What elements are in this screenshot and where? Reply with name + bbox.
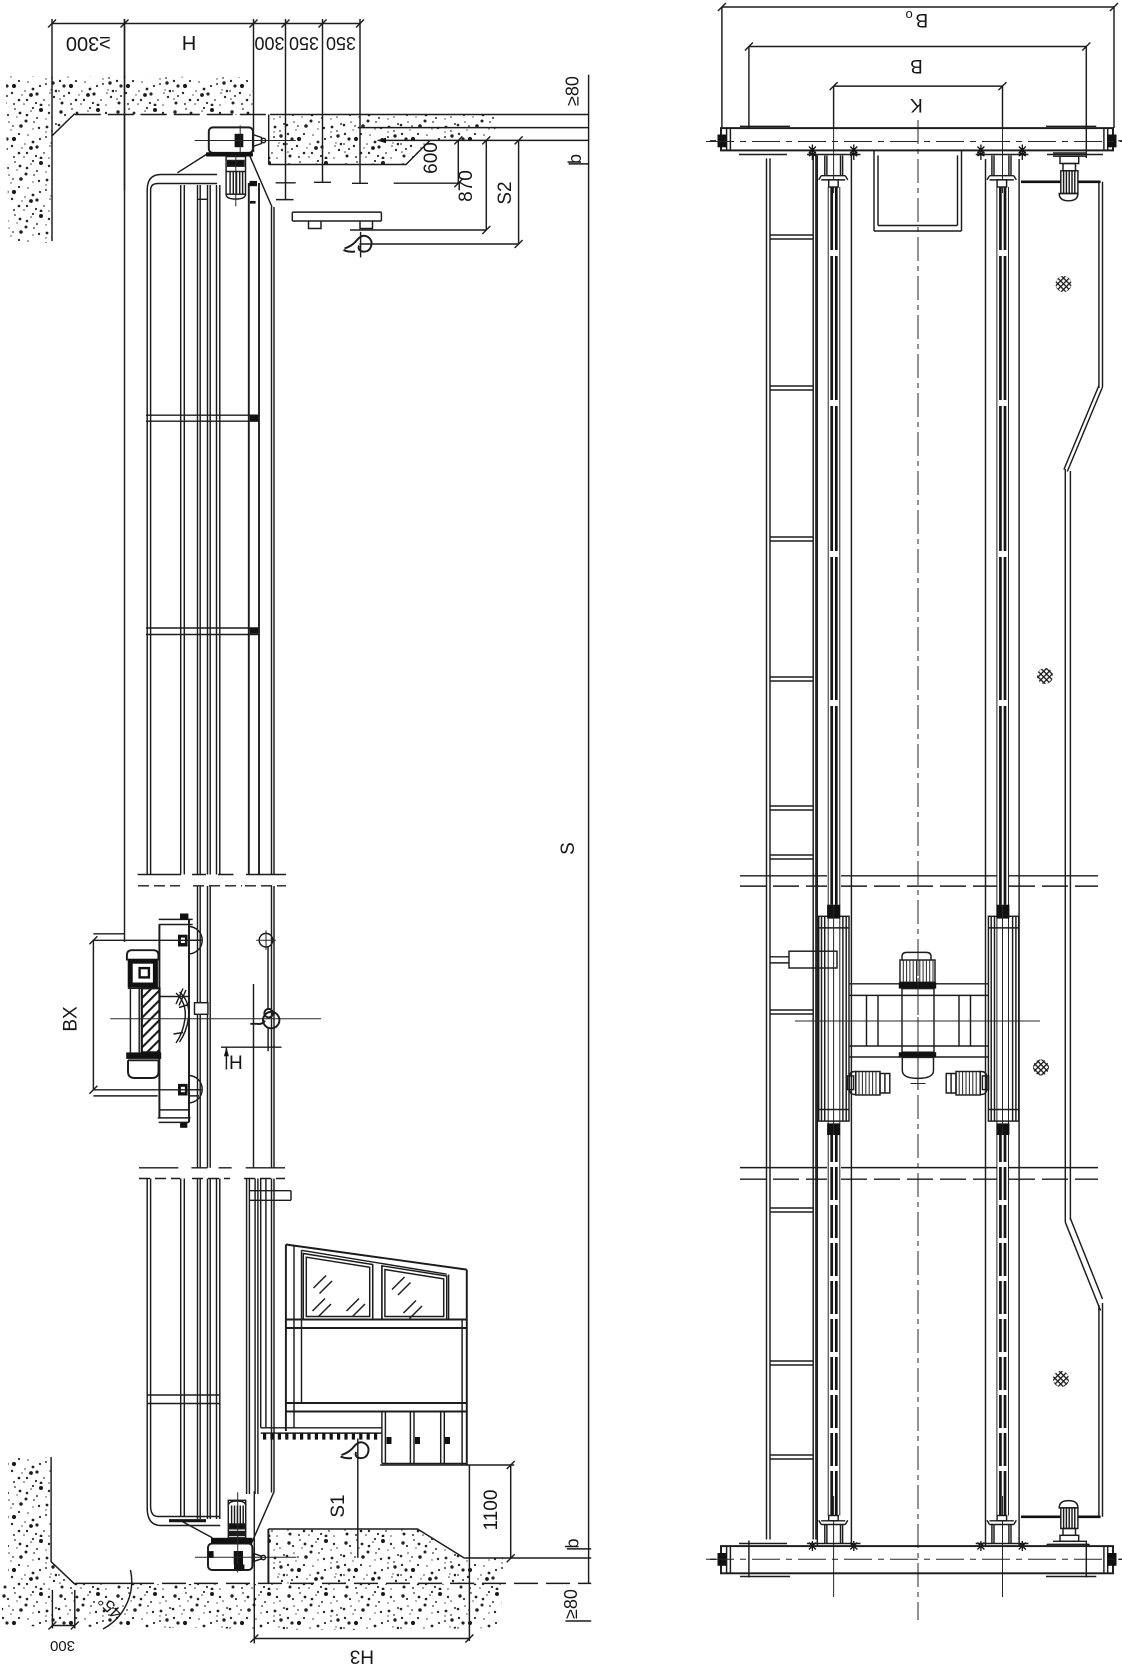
svg-text:350: 350 — [289, 33, 319, 53]
svg-text:1100: 1100 — [481, 1490, 502, 1531]
svg-text:350: 350 — [326, 33, 356, 53]
svg-text:870: 870 — [456, 170, 477, 202]
svg-text:K: K — [910, 94, 923, 115]
svg-text:600: 600 — [421, 142, 442, 174]
svg-text:H: H — [182, 31, 196, 53]
svg-text:S: S — [558, 842, 579, 855]
svg-text:BX: BX — [61, 1006, 82, 1032]
svg-text:300: 300 — [50, 1637, 75, 1654]
svg-text:S2: S2 — [495, 181, 516, 204]
svg-text:b: b — [565, 154, 585, 164]
svg-text:≥80: ≥80 — [561, 1589, 581, 1619]
svg-text:≥80: ≥80 — [563, 76, 583, 106]
svg-text:B: B — [915, 9, 928, 30]
svg-text:S1: S1 — [328, 1494, 349, 1517]
svg-text:300: 300 — [254, 33, 284, 53]
svg-text:H3: H3 — [350, 1646, 374, 1665]
svg-text:≥300: ≥300 — [66, 32, 110, 54]
svg-text:b: b — [562, 1538, 582, 1548]
svg-text:B: B — [910, 55, 923, 76]
svg-text:H: H — [229, 1053, 243, 1074]
svg-text:o: o — [906, 8, 913, 23]
